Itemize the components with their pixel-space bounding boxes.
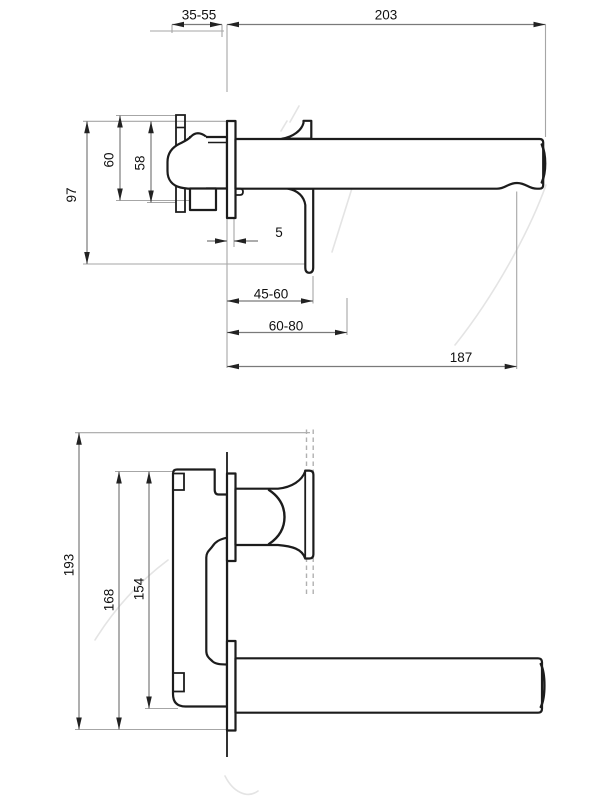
dim-label-handle-reach-range: 45-60 [254, 287, 289, 302]
dim-label-total-height-side: 97 [64, 187, 79, 202]
dim-label-body-height-outer: 60 [102, 152, 117, 167]
dim-label-plate-thickness: 5 [275, 225, 283, 240]
dim-label-total-height-front: 193 [62, 554, 77, 577]
spout-pipe-front [236, 658, 543, 712]
side-view: 35-55 203 5 45-60 60-80 187 97 60 58 [64, 8, 546, 370]
rosette-handle [227, 474, 236, 562]
handle-lever-front [206, 538, 227, 665]
technical-drawing-sheet: 35-55 203 5 45-60 60-80 187 97 60 58 [0, 0, 600, 800]
dim-label-handle-reach-max-range: 60-80 [269, 319, 304, 334]
dim-label-body-inner-height-front: 154 [132, 577, 147, 600]
dim-label-body-height-front: 168 [102, 589, 117, 612]
front-view: 193 168 154 [62, 430, 545, 758]
dim-label-spout-reach-to-aerator: 187 [450, 350, 473, 365]
spout-pipe-side [236, 139, 544, 189]
handle-knob [236, 471, 314, 559]
dim-label-body-height-inner: 58 [133, 155, 148, 170]
mixer-body-lower-block [190, 189, 216, 211]
faucet-dimension-drawing: 35-55 203 5 45-60 60-80 187 97 60 58 [0, 0, 600, 800]
handle-lever-side [288, 189, 313, 273]
dim-label-wall-depth-range: 35-55 [182, 8, 217, 23]
cartridge-dome [168, 133, 207, 189]
dim-label-spout-total-length: 203 [375, 8, 398, 23]
wall-plate-side [227, 121, 236, 218]
rosette-spout [227, 641, 236, 731]
